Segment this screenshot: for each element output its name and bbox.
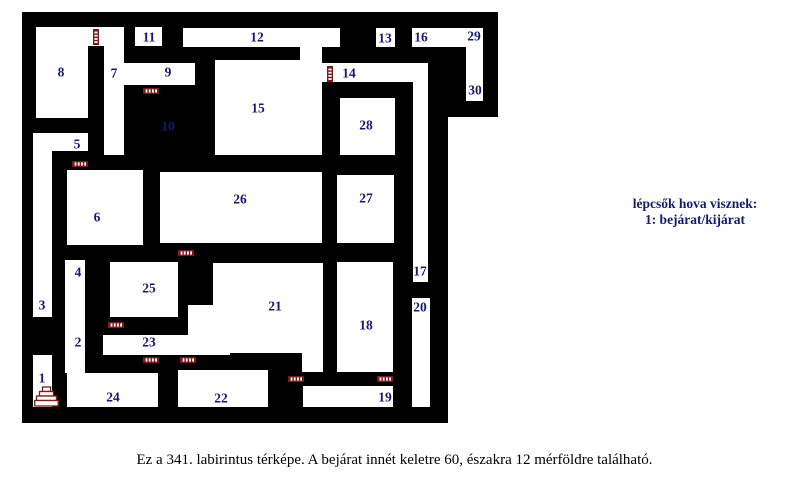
room-floor bbox=[103, 335, 230, 355]
door-rung bbox=[291, 377, 293, 380]
room-label-9: 9 bbox=[165, 65, 172, 80]
map-caption: Ez a 341. labirintus térképe. A bejárat … bbox=[0, 452, 789, 469]
door-rung bbox=[386, 377, 388, 380]
door-rung bbox=[94, 38, 97, 40]
door-rung bbox=[155, 358, 157, 361]
door-rung bbox=[75, 162, 77, 165]
room-label-7: 7 bbox=[111, 66, 118, 81]
door-rung bbox=[328, 72, 331, 74]
entrance-stairs-icon bbox=[37, 396, 57, 401]
room-label-24: 24 bbox=[106, 390, 120, 405]
room-label-19: 19 bbox=[378, 390, 392, 405]
room-label-13: 13 bbox=[378, 31, 392, 46]
door-rung bbox=[380, 377, 382, 380]
legend-title: lépcsők hova visznek: bbox=[555, 196, 789, 212]
room-label-11: 11 bbox=[143, 30, 156, 45]
room-label-21: 21 bbox=[268, 299, 282, 314]
room-label-5: 5 bbox=[74, 137, 81, 152]
entrance-stairs-icon bbox=[40, 392, 54, 397]
door-rung bbox=[192, 358, 194, 361]
room-label-29: 29 bbox=[467, 29, 481, 44]
door-rung bbox=[114, 323, 116, 326]
door-rung bbox=[297, 377, 299, 380]
door-rung bbox=[94, 35, 97, 37]
room-label-18: 18 bbox=[359, 318, 373, 333]
door-rung bbox=[184, 251, 186, 254]
door-rung bbox=[81, 162, 83, 165]
door-rung bbox=[155, 89, 157, 92]
room-label-20: 20 bbox=[413, 300, 427, 315]
room-label-22: 22 bbox=[214, 391, 228, 406]
room-label-6: 6 bbox=[94, 210, 101, 225]
door-rung bbox=[94, 32, 97, 34]
room-label-25: 25 bbox=[142, 281, 156, 296]
room-label-14: 14 bbox=[342, 66, 356, 81]
door-rung bbox=[120, 323, 122, 326]
door-rung bbox=[152, 89, 154, 92]
door-rung bbox=[300, 377, 302, 380]
room-label-30: 30 bbox=[468, 83, 482, 98]
door-rung bbox=[94, 41, 97, 43]
room-label-12: 12 bbox=[250, 30, 264, 45]
room-floor bbox=[413, 63, 428, 282]
labyrinth-map: 1234567891011121314151617181920212223242… bbox=[0, 0, 789, 493]
door-rung bbox=[189, 358, 191, 361]
door-rung bbox=[187, 251, 189, 254]
room-label-27: 27 bbox=[359, 191, 373, 206]
room-label-8: 8 bbox=[58, 65, 65, 80]
room-floor bbox=[67, 170, 143, 245]
entrance-stairs-icon bbox=[43, 387, 51, 392]
room-floor bbox=[302, 353, 323, 372]
entrance-stairs-icon bbox=[35, 401, 59, 407]
door-rung bbox=[294, 377, 296, 380]
door-rung bbox=[117, 323, 119, 326]
room-floor bbox=[104, 27, 124, 155]
door-rung bbox=[181, 251, 183, 254]
room-label-23: 23 bbox=[142, 335, 156, 350]
door-rung bbox=[328, 75, 331, 77]
room-label-3: 3 bbox=[39, 298, 46, 313]
door-rung bbox=[328, 78, 331, 80]
room-label-2: 2 bbox=[75, 335, 82, 350]
door-rung bbox=[186, 358, 188, 361]
room-label-16: 16 bbox=[414, 30, 428, 45]
labyrinth-map-page: 1234567891011121314151617181920212223242… bbox=[0, 0, 789, 493]
room-label-26: 26 bbox=[233, 192, 247, 207]
room-floor bbox=[337, 175, 394, 243]
legend-entry-1: 1: bejárat/kijárat bbox=[555, 212, 789, 228]
room-label-28: 28 bbox=[359, 118, 373, 133]
door-rung bbox=[190, 251, 192, 254]
room-label-17: 17 bbox=[413, 264, 427, 279]
door-rung bbox=[149, 89, 151, 92]
room-floor bbox=[104, 63, 195, 85]
door-rung bbox=[146, 358, 148, 361]
room-label-15: 15 bbox=[251, 101, 265, 116]
room-floor bbox=[322, 63, 428, 82]
room-label-10: 10 bbox=[161, 119, 175, 134]
door-rung bbox=[152, 358, 154, 361]
door-rung bbox=[328, 69, 331, 71]
room-floor bbox=[215, 60, 322, 155]
door-rung bbox=[78, 162, 80, 165]
room-floor bbox=[33, 133, 52, 317]
room-label-1: 1 bbox=[39, 371, 46, 386]
door-rung bbox=[389, 377, 391, 380]
door-rung bbox=[183, 358, 185, 361]
room-floor bbox=[160, 172, 322, 243]
stairs-legend: lépcsők hova visznek: 1: bejárat/kijárat bbox=[555, 196, 789, 228]
door-rung bbox=[84, 162, 86, 165]
door-rung bbox=[149, 358, 151, 361]
door-rung bbox=[383, 377, 385, 380]
door-rung bbox=[146, 89, 148, 92]
room-label-4: 4 bbox=[75, 265, 82, 280]
door-rung bbox=[111, 323, 113, 326]
